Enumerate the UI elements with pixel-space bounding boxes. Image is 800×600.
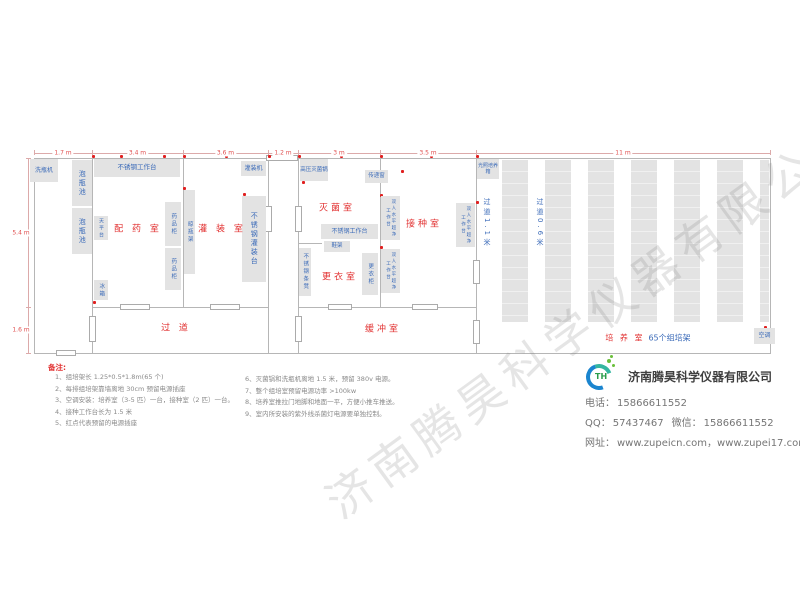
dimension-label: 1.2 m bbox=[272, 150, 293, 157]
power-outlet-dot bbox=[92, 155, 95, 158]
note-item: 8、培养室推拉门地脚和地面一平，方便小推车推送。 bbox=[245, 397, 399, 409]
equipment-light-incubator: 光照培养箱 bbox=[477, 159, 499, 179]
contact-label: 网址： bbox=[585, 438, 615, 449]
equipment-filling-machine: 灌装机 bbox=[241, 161, 266, 176]
equipment-steel-bench: 不锈钢条凳 bbox=[299, 248, 311, 296]
wall bbox=[268, 158, 269, 354]
culture-room-name: 培 养 室 bbox=[605, 334, 644, 343]
contact-label: QQ： bbox=[585, 418, 611, 429]
culture-rack bbox=[631, 160, 657, 322]
equipment-clean-bench-1: 双人水平超净工作台 bbox=[381, 196, 400, 240]
power-outlet-dot bbox=[302, 181, 305, 184]
dimension-label: 11 m bbox=[613, 150, 632, 157]
power-outlet-dot bbox=[183, 155, 186, 158]
contact-value: www.zupeicn.com，www.zupei17.com bbox=[617, 438, 800, 449]
company-contact-rows: 电话：15866611552QQ：57437467微信：15866611552网… bbox=[585, 394, 800, 454]
equipment-autoclave: 高压灭菌锅 bbox=[300, 159, 328, 181]
equipment-bottle-drying-rack: 晾瓶架 bbox=[184, 190, 195, 274]
dimension-label: 1.6 m bbox=[10, 327, 31, 334]
equipment-wardrobe: 更衣柜 bbox=[362, 253, 378, 295]
note-item: 9、室内所安装的紫外线杀菌灯电源要单独控制。 bbox=[245, 409, 399, 421]
dimension-tick bbox=[380, 150, 381, 155]
dimension-tick bbox=[26, 158, 31, 159]
wall bbox=[298, 307, 477, 308]
dimension-label: 3.4 m bbox=[127, 150, 148, 157]
equipment-fridge: 冰箱 bbox=[94, 280, 108, 300]
power-outlet-dot bbox=[401, 170, 404, 173]
equipment-air-conditioner: 空调 bbox=[754, 328, 775, 344]
dimension-tick bbox=[34, 150, 35, 155]
dimension-tick bbox=[183, 150, 184, 155]
room-label-corridor: 过 道 bbox=[161, 321, 191, 334]
notes: 备注: 1、组培架长 1.25*0.5*1.8m(65 个)2、每排组培架靠墙离… bbox=[48, 362, 66, 373]
equipment-shoe-rack: 鞋架 bbox=[324, 241, 350, 252]
equipment-medicine-cabinet-2: 药品柜 bbox=[165, 248, 181, 290]
contact-value: 57437467 bbox=[613, 418, 664, 429]
equipment-balance-table: 天平台 bbox=[94, 216, 108, 240]
company-logo: TH bbox=[585, 360, 617, 392]
dimension-label: 3 m bbox=[331, 150, 347, 157]
dimension-label: 1.7 m bbox=[52, 150, 73, 157]
aisle-width-label: 过道0.6米 bbox=[535, 198, 545, 248]
equipment-filling-table: 不锈钢灌装台 bbox=[242, 196, 266, 282]
notes-column-2: 6、灭菌锅和洗瓶机离地 1.5 米，预留 380v 电源。7、整个组培室预留电源… bbox=[245, 374, 399, 420]
contact-value: 15866611552 bbox=[704, 418, 774, 429]
door-symbol bbox=[295, 316, 302, 342]
wall bbox=[298, 243, 322, 244]
note-item: 3、空调安装：培养室（3-5 匹）一台，接种室（2 匹）一台。 bbox=[55, 395, 234, 407]
note-item: 6、灭菌锅和洗瓶机离地 1.5 米，预留 380v 电源。 bbox=[245, 374, 399, 386]
wall bbox=[34, 353, 771, 354]
door-symbol bbox=[56, 350, 76, 356]
equipment-medicine-cabinet-1: 药品柜 bbox=[165, 202, 181, 246]
culture-rack bbox=[760, 160, 769, 322]
dimension-tick bbox=[298, 150, 299, 155]
contact-row: QQ：57437467微信：15866611552 bbox=[585, 414, 800, 429]
note-item: 2、每排组培架靠墙离地 30cm 预留电源插座 bbox=[55, 384, 234, 396]
culture-rack bbox=[717, 160, 743, 322]
contact-row: 电话：15866611552 bbox=[585, 394, 800, 409]
culture-rack bbox=[502, 160, 528, 322]
door-symbol bbox=[89, 316, 96, 342]
culture-room-label: 培 养 室65个组培架 bbox=[605, 333, 690, 344]
power-outlet-dot bbox=[298, 155, 301, 158]
dimension-tick bbox=[476, 150, 477, 155]
notes-column-1: 1、组培架长 1.25*0.5*1.8m(65 个)2、每排组培架靠墙离地 30… bbox=[55, 372, 234, 430]
door-symbol bbox=[295, 206, 302, 232]
equipment-pass-window: 传递窗 bbox=[365, 170, 388, 183]
dimension-tick bbox=[26, 307, 31, 308]
equipment-soak-pool-1: 泡瓶池 bbox=[72, 160, 92, 206]
leaf-icon bbox=[610, 355, 613, 358]
equipment-clean-bench-2: 双人水平超净工作台 bbox=[381, 249, 400, 293]
room-label-sterilization-room: 灭菌室 bbox=[319, 201, 355, 214]
room-label-prep-room: 配 药 室 bbox=[114, 222, 162, 235]
equipment-worktable-prep: 不锈钢工作台 bbox=[94, 159, 180, 177]
note-item: 1、组培架长 1.25*0.5*1.8m(65 个) bbox=[55, 372, 234, 384]
equipment-soak-pool-2: 泡瓶池 bbox=[72, 208, 92, 254]
aisle-width-label: 过道1.1米 bbox=[482, 198, 492, 248]
company-name: 济南腾昊科学仪器有限公司 bbox=[628, 368, 772, 385]
dimension-label: 3.6 m bbox=[215, 150, 236, 157]
dimension-tick bbox=[92, 150, 93, 155]
dimension-label: 3.5 m bbox=[417, 150, 438, 157]
culture-rack bbox=[545, 160, 571, 322]
note-item: 4、接种工作台长为 1.5 米 bbox=[55, 407, 234, 419]
room-label-filling-room: 灌 装 室 bbox=[198, 222, 246, 235]
door-symbol bbox=[120, 304, 150, 310]
equipment-worktable-steril: 不锈钢工作台 bbox=[321, 224, 378, 239]
floor-plan: 洗瓶机泡瓶池泡瓶池不锈钢工作台天平台冰箱药品柜药品柜晾瓶架灌装机不锈钢灌装台高压… bbox=[0, 0, 800, 600]
equipment-clean-bench-3: 双人水平超净工作台 bbox=[456, 203, 475, 247]
room-label-changing-room: 更衣室 bbox=[322, 270, 358, 283]
room-label-inoculation-room: 接种室 bbox=[406, 217, 442, 230]
contact-label: 微信： bbox=[672, 418, 702, 429]
power-outlet-dot bbox=[380, 155, 383, 158]
contact-label: 电话： bbox=[585, 398, 615, 409]
equipment-bottle-washer: 洗瓶机 bbox=[30, 159, 58, 182]
power-outlet-dot bbox=[476, 155, 479, 158]
door-symbol bbox=[473, 260, 480, 284]
room-label-buffer-room: 缓冲室 bbox=[365, 322, 401, 335]
power-outlet-dot bbox=[93, 301, 96, 304]
wall bbox=[34, 158, 35, 354]
power-outlet-dot bbox=[120, 155, 123, 158]
power-outlet-dot bbox=[163, 155, 166, 158]
wall bbox=[298, 158, 770, 159]
dimension-tick bbox=[268, 150, 269, 155]
door-symbol bbox=[473, 320, 480, 344]
leaf-icon bbox=[607, 359, 611, 363]
culture-rack bbox=[674, 160, 700, 322]
door-symbol bbox=[265, 206, 272, 232]
contact-row: 网址：www.zupeicn.com，www.zupei17.com bbox=[585, 434, 800, 449]
dimension-label: 5.4 m bbox=[10, 229, 31, 236]
page: { "watermark": "济南腾昊科学仪器有限公司", "plan": {… bbox=[0, 0, 800, 600]
culture-rack-count: 65个组培架 bbox=[648, 334, 690, 343]
power-outlet-dot bbox=[268, 155, 271, 158]
dimension-tick bbox=[26, 353, 31, 354]
door-symbol bbox=[328, 304, 352, 310]
dimension-tick bbox=[770, 150, 771, 155]
culture-rack bbox=[588, 160, 614, 322]
power-outlet-dot bbox=[476, 201, 479, 204]
wall bbox=[770, 158, 771, 354]
logo-initials: TH bbox=[595, 372, 607, 381]
door-symbol bbox=[412, 304, 438, 310]
wall bbox=[92, 307, 269, 308]
note-item: 5、红点代表预留的电源插座 bbox=[55, 418, 234, 430]
door-symbol bbox=[210, 304, 240, 310]
leaf-icon bbox=[612, 364, 615, 367]
contact-value: 15866611552 bbox=[617, 398, 687, 409]
note-item: 7、整个组培室预留电源功率 >100kw bbox=[245, 386, 399, 398]
